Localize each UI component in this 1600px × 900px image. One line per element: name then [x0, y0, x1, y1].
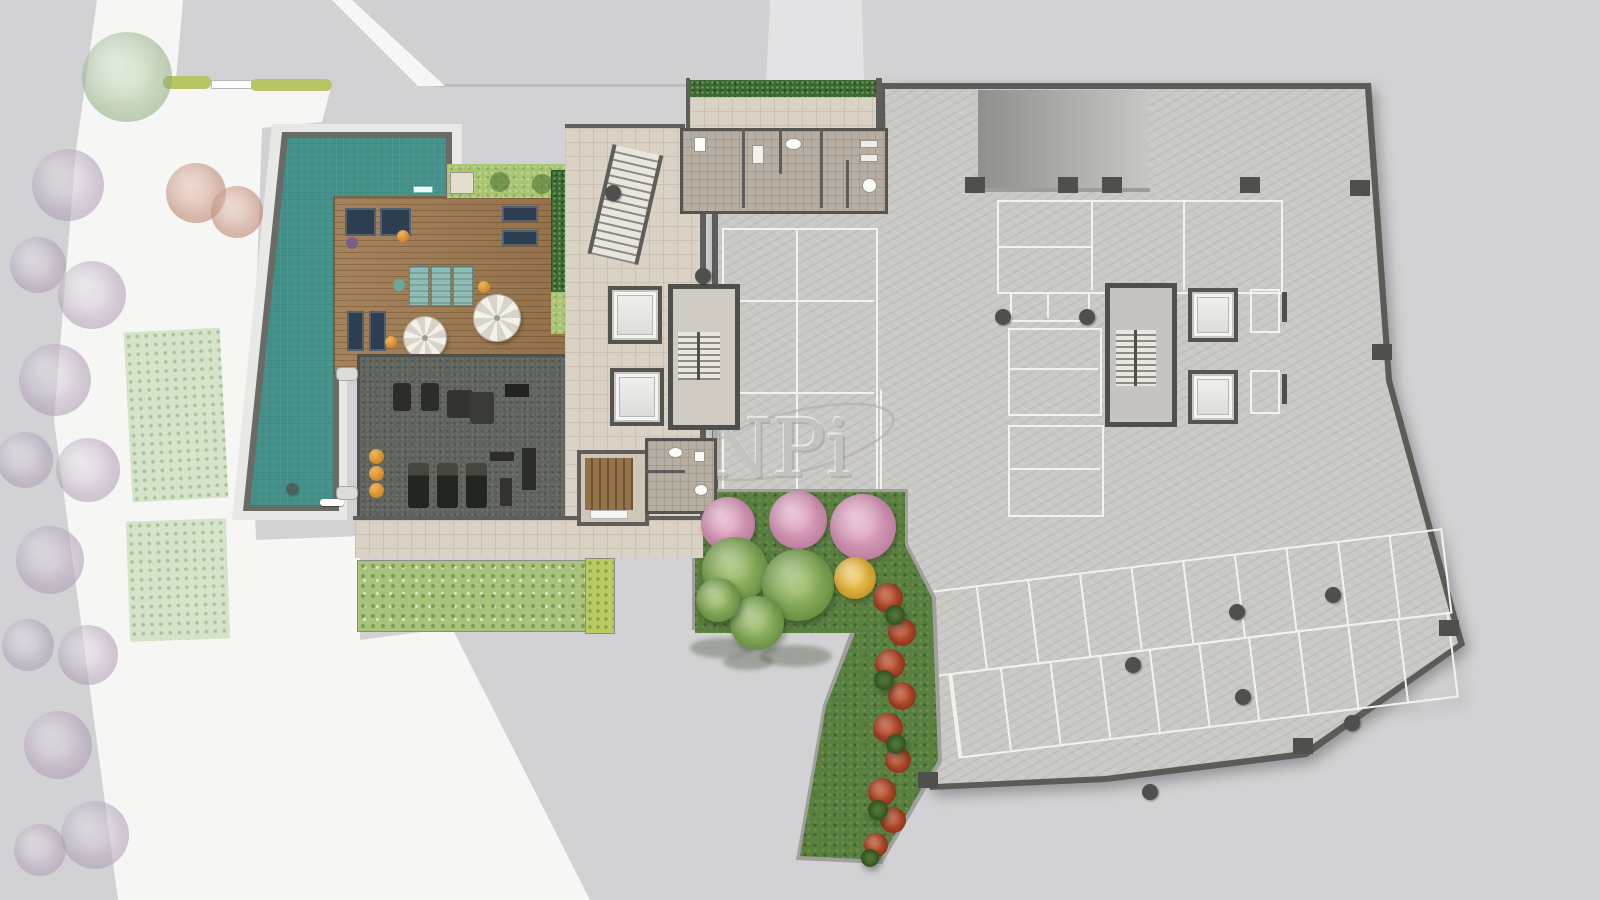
- garage-ramp: [978, 90, 1148, 190]
- toilet: [668, 447, 683, 458]
- street-hedge: [250, 79, 332, 91]
- sun-mat: [502, 230, 538, 246]
- pool-ladder: [320, 499, 344, 506]
- stall-divider: [1091, 200, 1093, 290]
- lounge-chair: [409, 266, 429, 306]
- wall: [742, 128, 745, 208]
- shrub-green: [874, 670, 894, 690]
- sun-mat: [502, 206, 538, 222]
- flowering-shrub-red: [888, 682, 916, 710]
- flowering-tree-yellow: [834, 557, 876, 599]
- parking-stall-block: [1010, 292, 1090, 322]
- shrub-green: [868, 800, 888, 820]
- garden-bed: [124, 328, 229, 503]
- shelf: [860, 140, 878, 148]
- street-tree-lilac: [58, 261, 126, 329]
- weight-rack: [500, 478, 512, 506]
- shrub-green: [886, 734, 906, 754]
- lounge-chair: [431, 266, 451, 306]
- garage-elevator: [1188, 370, 1238, 424]
- planting-bed-south: [357, 560, 614, 632]
- street-tree-lilac: [2, 619, 54, 671]
- garden-tree-green: [696, 578, 740, 622]
- stall-divider: [1008, 368, 1098, 370]
- round-column: [1142, 784, 1158, 800]
- planting-bed-bright: [585, 558, 615, 634]
- terrace-south: [355, 520, 703, 558]
- pool-lap-marker: [413, 186, 433, 193]
- round-column: [1325, 587, 1341, 603]
- structural-column: [918, 772, 938, 788]
- structural-column: [965, 177, 985, 193]
- wall: [565, 124, 685, 128]
- stall-divider: [1047, 292, 1049, 318]
- structural-column: [1240, 177, 1260, 193]
- poolside-lounger: [336, 486, 358, 500]
- wall: [846, 160, 849, 208]
- stair-landing: [590, 510, 628, 519]
- street-tree-lilac: [24, 711, 92, 779]
- shrub-green: [885, 605, 905, 625]
- dumbbell-rack: [522, 448, 536, 490]
- side-table: [397, 230, 409, 242]
- round-column: [605, 185, 621, 201]
- structural-column: [1293, 738, 1313, 754]
- stair-rail: [697, 332, 700, 380]
- round-column: [1079, 309, 1095, 325]
- sink: [694, 451, 705, 462]
- parking-stall-small: [1250, 289, 1280, 333]
- street-tree-lilac: [61, 801, 129, 869]
- shrub-green: [861, 849, 879, 867]
- terrace-north: [690, 97, 880, 130]
- wood-stair-treads: [585, 458, 633, 510]
- restroom-block: [680, 128, 888, 214]
- wall: [820, 128, 823, 208]
- garage-elevator: [1188, 288, 1238, 342]
- counter: [752, 145, 764, 164]
- lounge-chair: [369, 311, 386, 351]
- street-tree-lilac: [58, 625, 118, 685]
- sink: [694, 137, 706, 152]
- exercise-ball: [369, 483, 384, 498]
- wall: [876, 78, 882, 130]
- wall: [779, 128, 782, 174]
- daybed: [345, 208, 376, 236]
- street-tree-lilac: [32, 149, 104, 221]
- gym-machine: [393, 383, 411, 411]
- side-table: [346, 237, 358, 249]
- parking-stall-block: [1008, 328, 1102, 416]
- round-column: [995, 309, 1011, 325]
- street-tree-red: [211, 186, 263, 238]
- treadmill: [408, 463, 429, 508]
- round-column: [1125, 657, 1141, 673]
- street-tree-lilac: [0, 432, 53, 488]
- wall-pilaster: [1282, 374, 1287, 404]
- stall-divider: [722, 300, 874, 302]
- poolside-lounger: [336, 367, 358, 381]
- lounge-chair: [453, 266, 473, 306]
- gym-bench: [490, 452, 514, 461]
- side-table: [385, 336, 397, 348]
- garage-stair-rail: [1134, 330, 1137, 386]
- palm-shadow: [490, 172, 510, 192]
- flowering-tree-pink: [769, 491, 827, 549]
- round-column: [695, 268, 711, 284]
- wall-pilaster: [1282, 292, 1287, 322]
- pool-drain: [286, 483, 298, 495]
- planter-hedge-north: [690, 80, 880, 97]
- street-tree-lilac: [16, 526, 84, 594]
- elevator: [610, 368, 664, 426]
- structural-column: [1102, 177, 1122, 193]
- stall-divider: [997, 246, 1091, 248]
- exercise-ball: [369, 466, 384, 481]
- structural-column: [1439, 620, 1459, 636]
- structural-column: [1372, 344, 1392, 360]
- site-plan-canvas: NPi NPi NPi: [0, 0, 1600, 900]
- shelf: [860, 154, 878, 162]
- treadmill: [466, 463, 487, 508]
- treadmill: [437, 463, 458, 508]
- outdoor-shower: [450, 172, 474, 194]
- structural-column: [1350, 180, 1370, 196]
- round-column: [1235, 689, 1251, 705]
- elevator: [608, 286, 662, 344]
- street-tree-lilac: [10, 237, 66, 293]
- street-tree-lilac: [56, 438, 120, 502]
- side-table: [478, 281, 490, 293]
- toilet: [785, 138, 802, 150]
- gym-multi-station: [470, 392, 494, 424]
- street-tree-lilac: [19, 344, 91, 416]
- structural-column: [1058, 177, 1078, 193]
- toilet: [694, 484, 708, 496]
- wall: [686, 78, 690, 130]
- gym-mat: [505, 384, 529, 397]
- round-column: [1344, 715, 1360, 731]
- garden-bed: [126, 518, 230, 641]
- exercise-ball: [369, 449, 384, 464]
- wall: [645, 470, 685, 473]
- street-tree-green: [82, 32, 172, 122]
- lounge-chair: [347, 311, 364, 351]
- tree-shadow: [723, 654, 773, 670]
- patio-umbrella: [474, 295, 520, 341]
- parking-stall-block: [1008, 425, 1104, 517]
- side-table: [393, 279, 405, 291]
- street-tree-lilac: [14, 824, 66, 876]
- gym-machine: [421, 383, 439, 411]
- parking-stall-small: [1250, 370, 1280, 414]
- toilet: [862, 178, 877, 193]
- stall-divider: [1183, 200, 1185, 290]
- palm-shadow: [532, 174, 552, 194]
- flowering-tree-pink: [830, 494, 896, 560]
- patio-umbrella: [404, 317, 446, 359]
- wall: [353, 516, 703, 520]
- stall-divider: [1008, 468, 1100, 470]
- round-column: [1229, 604, 1245, 620]
- gate: [211, 80, 252, 89]
